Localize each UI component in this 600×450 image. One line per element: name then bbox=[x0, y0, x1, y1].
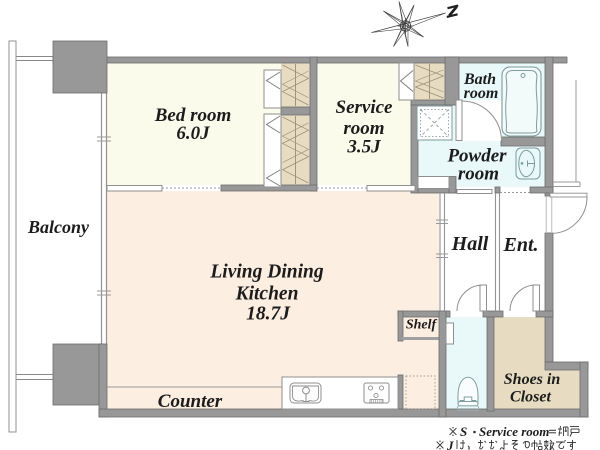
svg-text:18.7J: 18.7J bbox=[246, 304, 291, 325]
svg-text:Kitchen: Kitchen bbox=[235, 284, 299, 305]
svg-text:S: S bbox=[460, 424, 467, 439]
svg-text:room: room bbox=[458, 164, 499, 185]
svg-text:Closet: Closet bbox=[510, 389, 551, 406]
svg-text:3.5J: 3.5J bbox=[346, 137, 381, 158]
svg-text:J: J bbox=[446, 438, 454, 450]
svg-text:Living Dining: Living Dining bbox=[209, 262, 323, 283]
svg-text:Service room: Service room bbox=[479, 424, 549, 439]
svg-text:Balcony: Balcony bbox=[27, 217, 90, 237]
svg-text:Hall: Hall bbox=[451, 233, 489, 255]
svg-text:room: room bbox=[464, 85, 499, 102]
svg-text:Counter: Counter bbox=[158, 391, 223, 412]
svg-text:Shelf: Shelf bbox=[406, 318, 438, 333]
svg-text:Shoes in: Shoes in bbox=[504, 371, 561, 388]
svg-text:Ent.: Ent. bbox=[502, 234, 538, 256]
svg-text:Service: Service bbox=[336, 97, 394, 118]
svg-text:6.0J: 6.0J bbox=[176, 123, 210, 144]
